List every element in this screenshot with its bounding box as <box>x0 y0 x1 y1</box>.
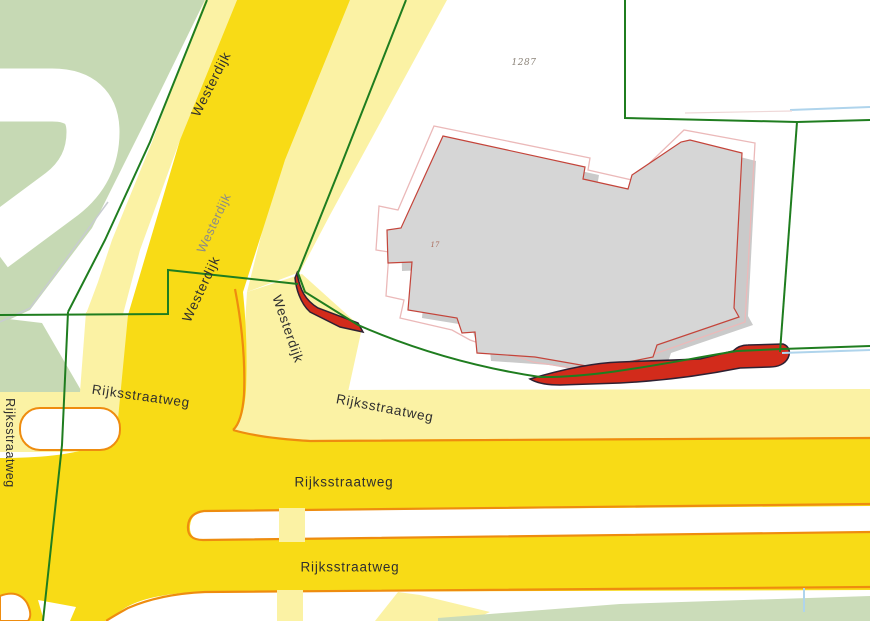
road-crossing-strip <box>279 508 305 542</box>
road-crossing-strip <box>277 590 303 621</box>
road-rijksstraatweg-service <box>318 389 870 444</box>
greenery-wedge <box>0 318 82 398</box>
map-canvas[interactable]: Westerdijk Westerdijk Westerdijk Westerd… <box>0 0 870 621</box>
building-footprint <box>387 136 742 368</box>
map-render-layer <box>0 0 870 621</box>
greenery-strip <box>438 596 870 621</box>
traffic-island <box>20 408 120 450</box>
parcel-edge-faint-line <box>685 111 792 113</box>
